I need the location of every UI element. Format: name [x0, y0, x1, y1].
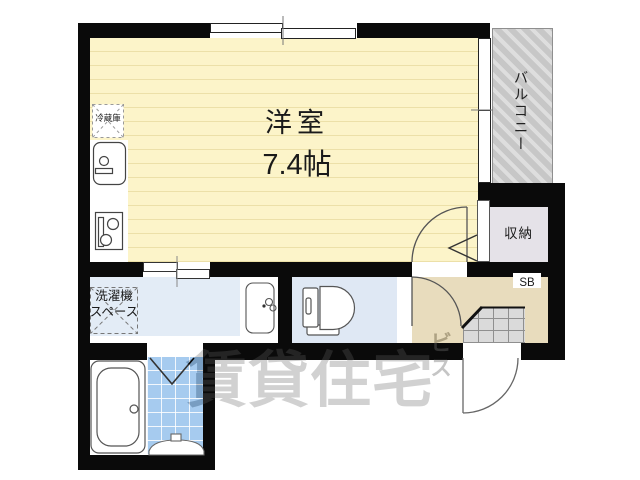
room-door-swing: [412, 207, 467, 262]
bathtub-icon: [91, 361, 145, 453]
refrigerator-label: 冷蔵庫: [91, 114, 125, 123]
closet-label: 収納: [489, 227, 548, 241]
vanity-basin-icon: [246, 283, 276, 333]
shoe-box-diagonal: [462, 307, 482, 328]
stove-icon: [96, 213, 123, 250]
hall-door-swing: [412, 277, 461, 326]
toilet-icon: [303, 287, 355, 336]
kitchen-sink-icon: [94, 143, 126, 185]
entrance-door-swing: [463, 358, 518, 413]
balcony-label: バルコニー: [512, 70, 527, 162]
watermark-subtext: ビス: [423, 331, 455, 381]
main-room-name: 洋室: [237, 110, 357, 137]
washer-label-line2: スペース: [86, 306, 142, 319]
watermark-text: 賃貸住宅: [186, 330, 434, 419]
bath-counter-icon: [149, 434, 204, 455]
floorplan: SB: [0, 0, 640, 480]
main-room-size: 7.4帖: [232, 151, 362, 180]
closet-door-chevron: [449, 235, 477, 261]
washer-label-line1: 洗濯機: [88, 290, 140, 303]
